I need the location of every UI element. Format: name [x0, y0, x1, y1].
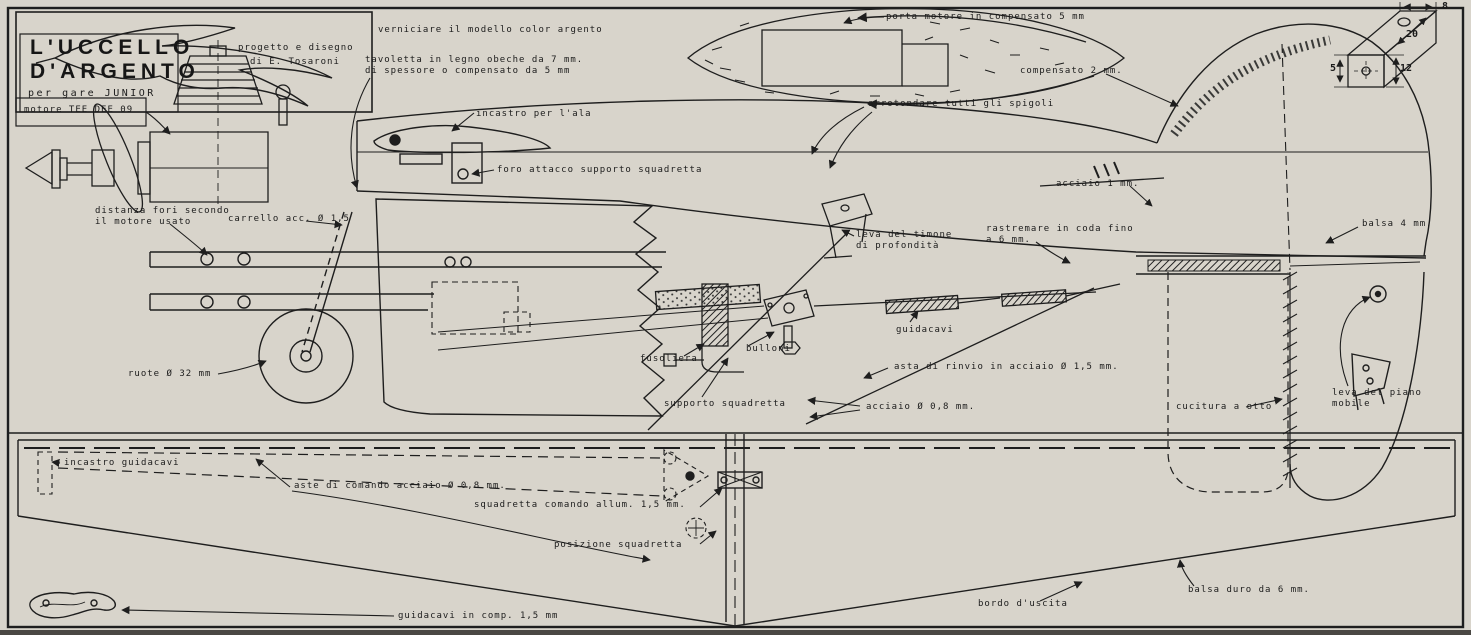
annotation-posizione-squadretta: posizione squadretta — [554, 540, 682, 551]
annotation-bordo-uscita: bordo d'uscita — [978, 599, 1068, 610]
corner-detail — [1334, 2, 1436, 87]
annotation-acciaio-08: acciaio Ø 0,8 mm. — [866, 402, 975, 413]
plan-subtitle: per gare JUNIOR — [28, 88, 156, 99]
credit-line2: di E. Tosaroni — [250, 56, 340, 69]
annotation-bulloni: bulloni — [746, 344, 791, 355]
annotation-guidacavi-comp: guidacavi in comp. 1,5 mm — [398, 611, 558, 622]
annotation-guidacavi-mid: guidacavi — [896, 325, 954, 336]
paper-edge-shadow — [0, 630, 1471, 635]
nose-top-view — [688, 9, 1124, 105]
dim-8: 8 — [1442, 2, 1448, 12]
plan-sheet: L'UCCELLO D'ARGENTO per gare JUNIOR prog… — [0, 0, 1471, 635]
annotation-squadretta-comando: squadretta comando allum. 1,5 mm. — [474, 500, 686, 511]
plan-title-line1: L'UCCELLO — [30, 36, 194, 60]
annotation-acciaio-1: acciaio 1 mm. — [1056, 179, 1139, 190]
annotation-foro-attacco: foro attacco supporto squadretta — [497, 165, 702, 176]
annotation-asta-rinvio: asta di rinvio in acciaio Ø 1,5 mm. — [894, 362, 1119, 373]
dim-12: 12 — [1400, 64, 1412, 74]
annotation-compensato-2: compensato 2 mm. — [1020, 66, 1123, 77]
annotation-arrotondare: arrotondare tutti gli spigoli — [868, 99, 1054, 110]
annotation-supporto-squadretta: supporto squadretta — [664, 399, 786, 410]
annotation-tavoletta: tavoletta in legno obeche da 7 mm. di sp… — [365, 55, 583, 77]
credit-line1: progetto e disegno — [238, 42, 354, 55]
annotation-incastro-guidacavi: incastro guidacavi — [64, 458, 180, 469]
annotation-incastro-ala: incastro per l'ala — [476, 109, 592, 120]
annotation-distanza-fori: distanza fori secondo il motore usato — [95, 206, 230, 228]
fuselage-side-view — [150, 100, 1428, 403]
wing-plan-view — [18, 434, 1455, 627]
plan-title-line2: D'ARGENTO — [30, 60, 200, 84]
annotation-porta-motore: porta motore in compensato 5 mm — [886, 12, 1085, 23]
annotation-balsa-duro: balsa duro da 6 mm. — [1188, 585, 1310, 596]
annotation-rastremare: rastremare in coda fino a 6 mm. — [986, 224, 1134, 246]
dim-20: 20 — [1406, 30, 1418, 40]
control-system — [438, 162, 1164, 430]
annotation-aste-comando: aste di comando acciaio Ø 0,8 mm. — [294, 481, 506, 492]
dim-5: 5 — [1330, 64, 1336, 74]
annotation-ruote: ruote Ø 32 mm — [128, 369, 211, 380]
tail-group — [1136, 24, 1431, 500]
annotation-leva-piano: leva del piano mobile — [1332, 388, 1422, 410]
annotation-carrello: carrello acc. Ø 1,5 — [228, 214, 350, 225]
motor-label: motore TEE DEE 09 — [24, 105, 133, 115]
plan-drawing — [0, 0, 1471, 635]
annotation-fusoliera: fusoliera — [640, 354, 698, 365]
wing-panel-torn — [376, 199, 664, 416]
annotation-cucitura: cucitura a otto — [1176, 402, 1272, 413]
annotation-leva-timone: leva del timone di profondità — [856, 230, 952, 252]
annotation-verniciare: verniciare il modello color argento — [378, 25, 603, 36]
annotation-balsa-4: balsa 4 mm. — [1362, 219, 1433, 230]
